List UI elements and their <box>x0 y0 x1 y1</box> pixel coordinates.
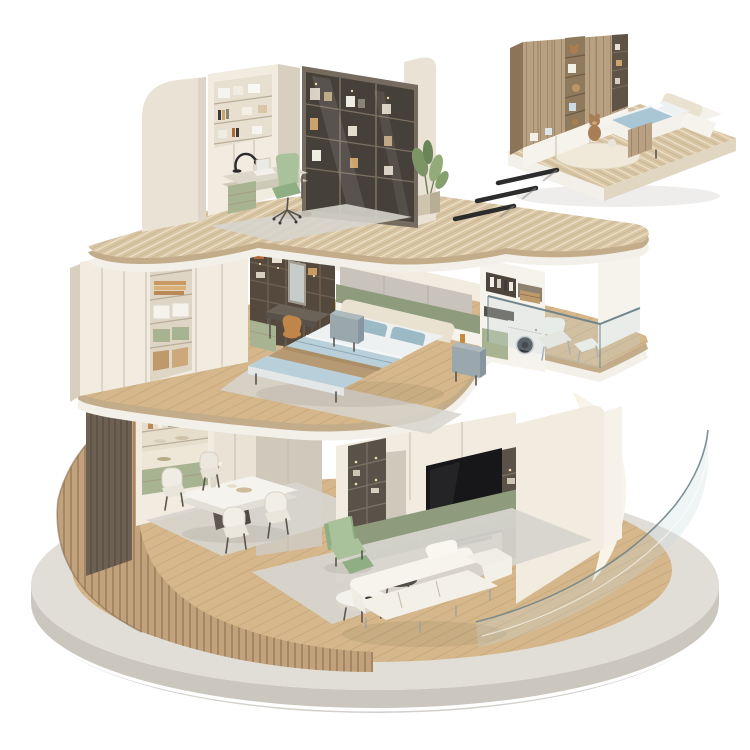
left-curved-wall <box>142 77 206 232</box>
shelf-tower-left <box>348 438 386 534</box>
render-canvas <box>0 0 750 750</box>
folded-clothes <box>154 281 186 285</box>
dark-slat-wall-panel <box>86 398 132 576</box>
module-bookcase-column <box>612 34 628 112</box>
books <box>218 110 221 120</box>
study <box>142 57 451 242</box>
basket <box>153 350 169 371</box>
glass-bookcase <box>302 66 418 228</box>
toy-ball <box>608 139 616 147</box>
fabric-drawer <box>153 329 170 342</box>
drawer-box <box>153 305 170 319</box>
toy-shelf-column <box>565 36 585 135</box>
teddy-bear <box>588 114 601 141</box>
storage-box <box>218 88 230 98</box>
mirror <box>290 263 304 303</box>
isometric-apartment-render <box>0 0 750 750</box>
detached-bedroom-module <box>508 34 736 207</box>
